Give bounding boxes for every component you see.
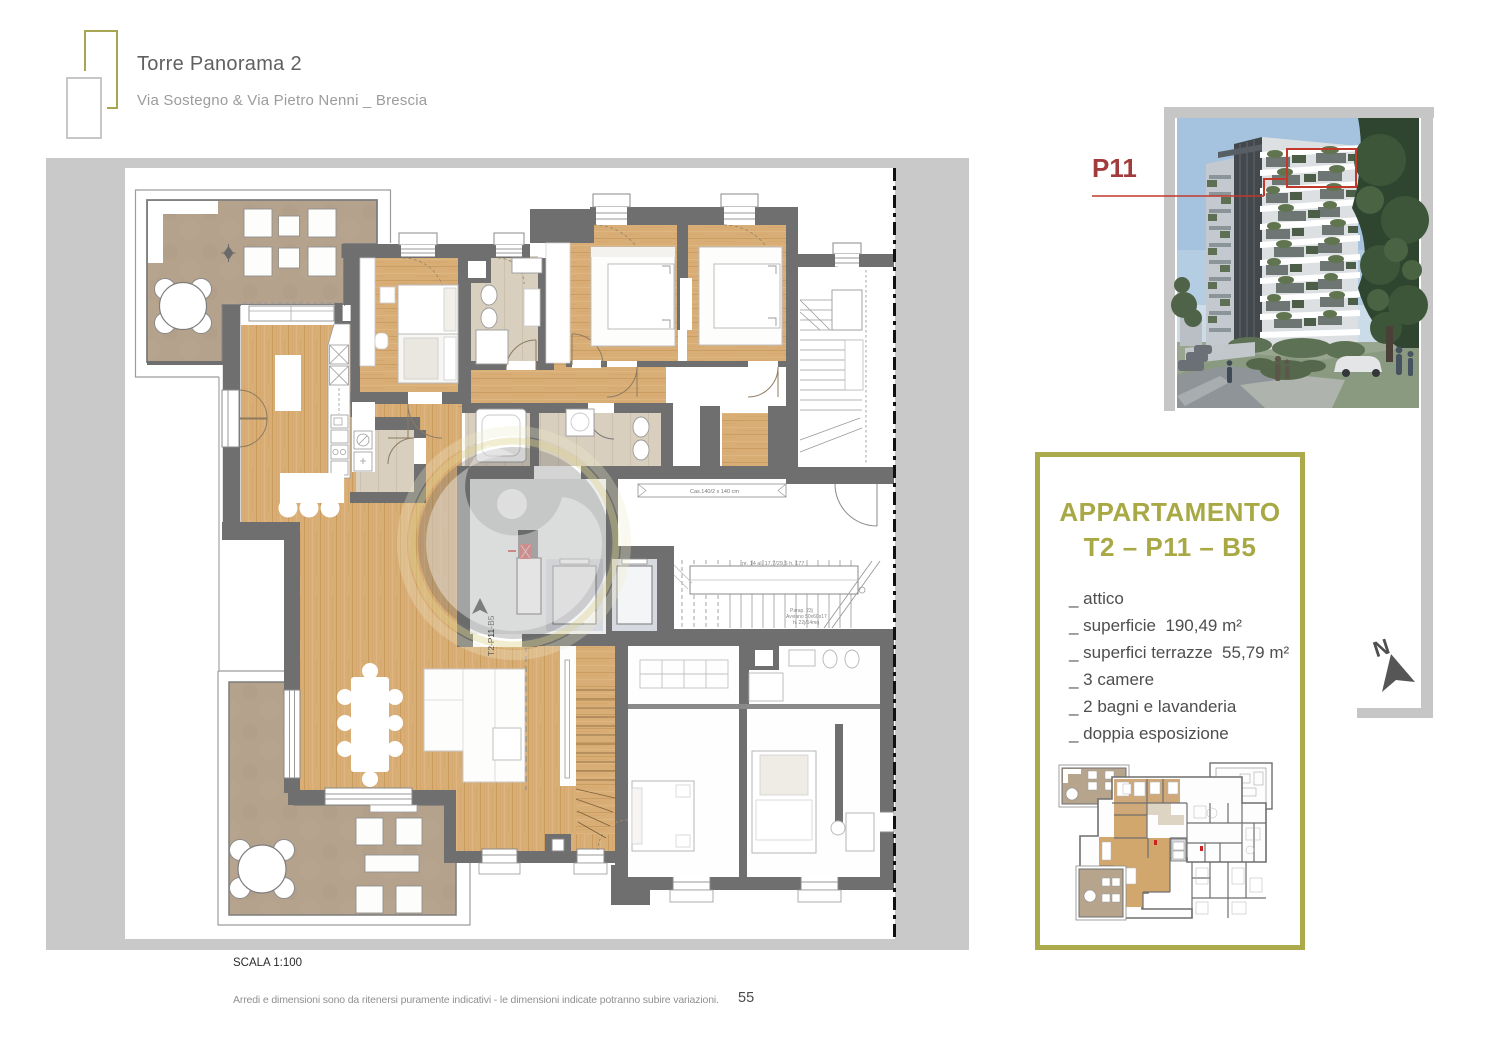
svg-text:h. 22j/14mq: h. 22j/14mq: [793, 620, 819, 626]
svg-text:nr. 14 al. 17,7/29,5 h. 177: nr. 14 al. 17,7/29,5 h. 177: [742, 561, 804, 567]
svg-text:Cas.140/2 x 140 cm: Cas.140/2 x 140 cm: [690, 489, 739, 495]
svg-text:N: N: [1370, 634, 1393, 663]
